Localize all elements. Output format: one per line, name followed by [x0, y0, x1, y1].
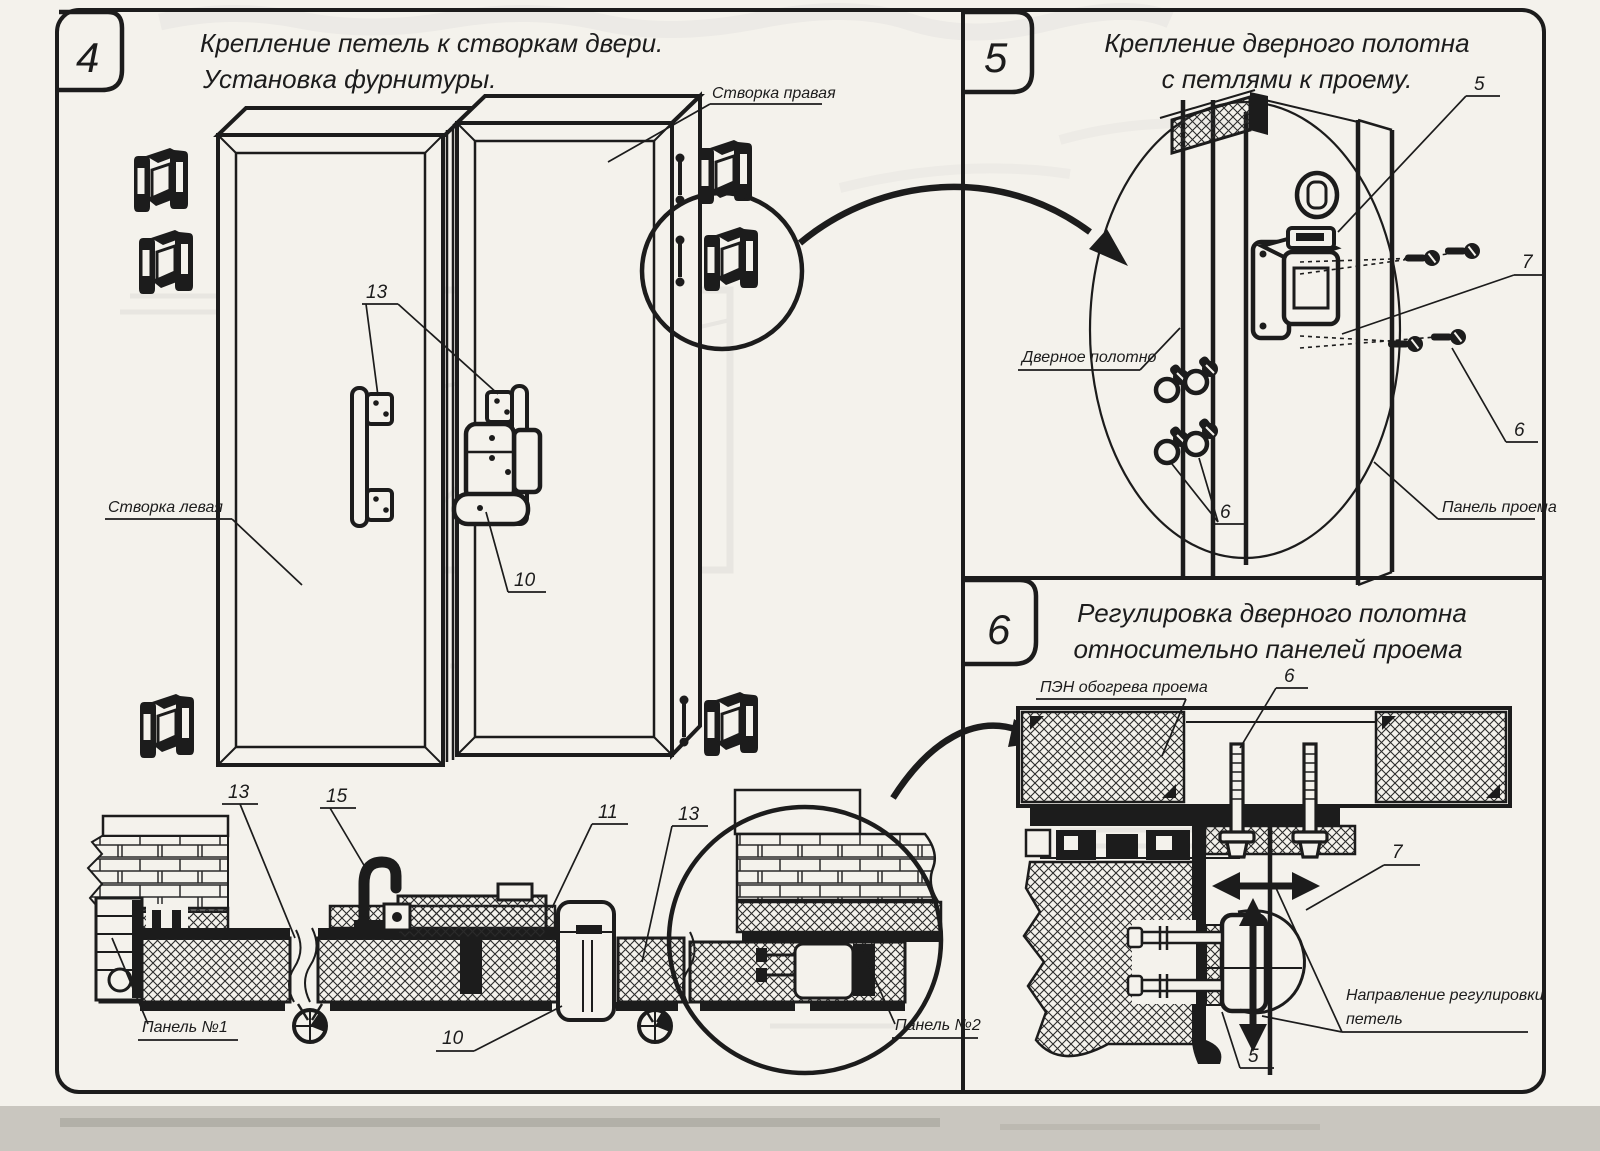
callout-11-section: 11	[598, 802, 618, 823]
callout-10-section: 10	[442, 1028, 464, 1049]
strike-profile-11	[558, 902, 614, 1020]
callout-7-adjuster: 7	[1522, 252, 1534, 273]
roller-icon	[639, 1010, 671, 1042]
label-panel-1: Панель №1	[142, 1019, 228, 1036]
label-heater: ПЭН обогрева проема	[1040, 679, 1208, 696]
scanned-assembly-sheet: 4 Крепление петель к створкам двери. Уст…	[0, 0, 1600, 1151]
step6-title-line2: относительно панелей проема	[1073, 634, 1462, 664]
step4-title-line1: Крепление петель к створкам двери.	[200, 28, 663, 58]
step6-number: 6	[987, 606, 1011, 653]
label-opening-panel: Панель проема	[1442, 499, 1557, 516]
label-right-leaf: Створка правая	[712, 85, 836, 102]
roller-icon	[294, 1010, 326, 1042]
callout-5-hinge: 5	[1474, 74, 1485, 95]
callout-6-bolts: 6	[1284, 666, 1295, 687]
label-direction-line2: петель	[1346, 1011, 1403, 1028]
callout-5-hinge-bottom: 5	[1248, 1046, 1259, 1067]
label-door-leaf: Дверное полотно	[1020, 349, 1157, 366]
latch-assembly	[454, 424, 540, 524]
step6-title-line1: Регулировка дверного полотна	[1077, 598, 1467, 628]
callout-13-section-left: 13	[228, 782, 250, 803]
label-left-leaf: Створка левая	[108, 499, 223, 516]
callout-15-section: 15	[326, 786, 348, 807]
step4-number: 4	[76, 34, 99, 81]
callout-6-screws-left: 6	[1220, 502, 1231, 523]
label-direction-line1: Направление регулировки	[1346, 987, 1544, 1004]
callout-10-latch: 10	[514, 570, 536, 591]
left-end-profile	[96, 898, 143, 1000]
door-leaves-drawing	[218, 96, 700, 765]
step5-title-line2: с петлями к проему.	[1162, 64, 1413, 94]
hinge-icon	[139, 230, 193, 294]
step5-title-line1: Крепление дверного полотна	[1104, 28, 1469, 58]
callout-13-section-right: 13	[678, 804, 700, 825]
callout-13-handles: 13	[366, 282, 388, 303]
hinge-icon	[704, 227, 758, 291]
callout-7-hinge: 7	[1392, 842, 1404, 863]
hinge-icon	[134, 148, 188, 212]
step5-number: 5	[984, 34, 1008, 81]
hinge-icon	[140, 694, 194, 758]
hinge-icon	[704, 692, 758, 756]
step4-title-line2: Установка фурнитуры.	[202, 64, 496, 94]
callout-6-screws-right: 6	[1514, 420, 1525, 441]
label-panel-2: Панель №2	[895, 1017, 981, 1034]
